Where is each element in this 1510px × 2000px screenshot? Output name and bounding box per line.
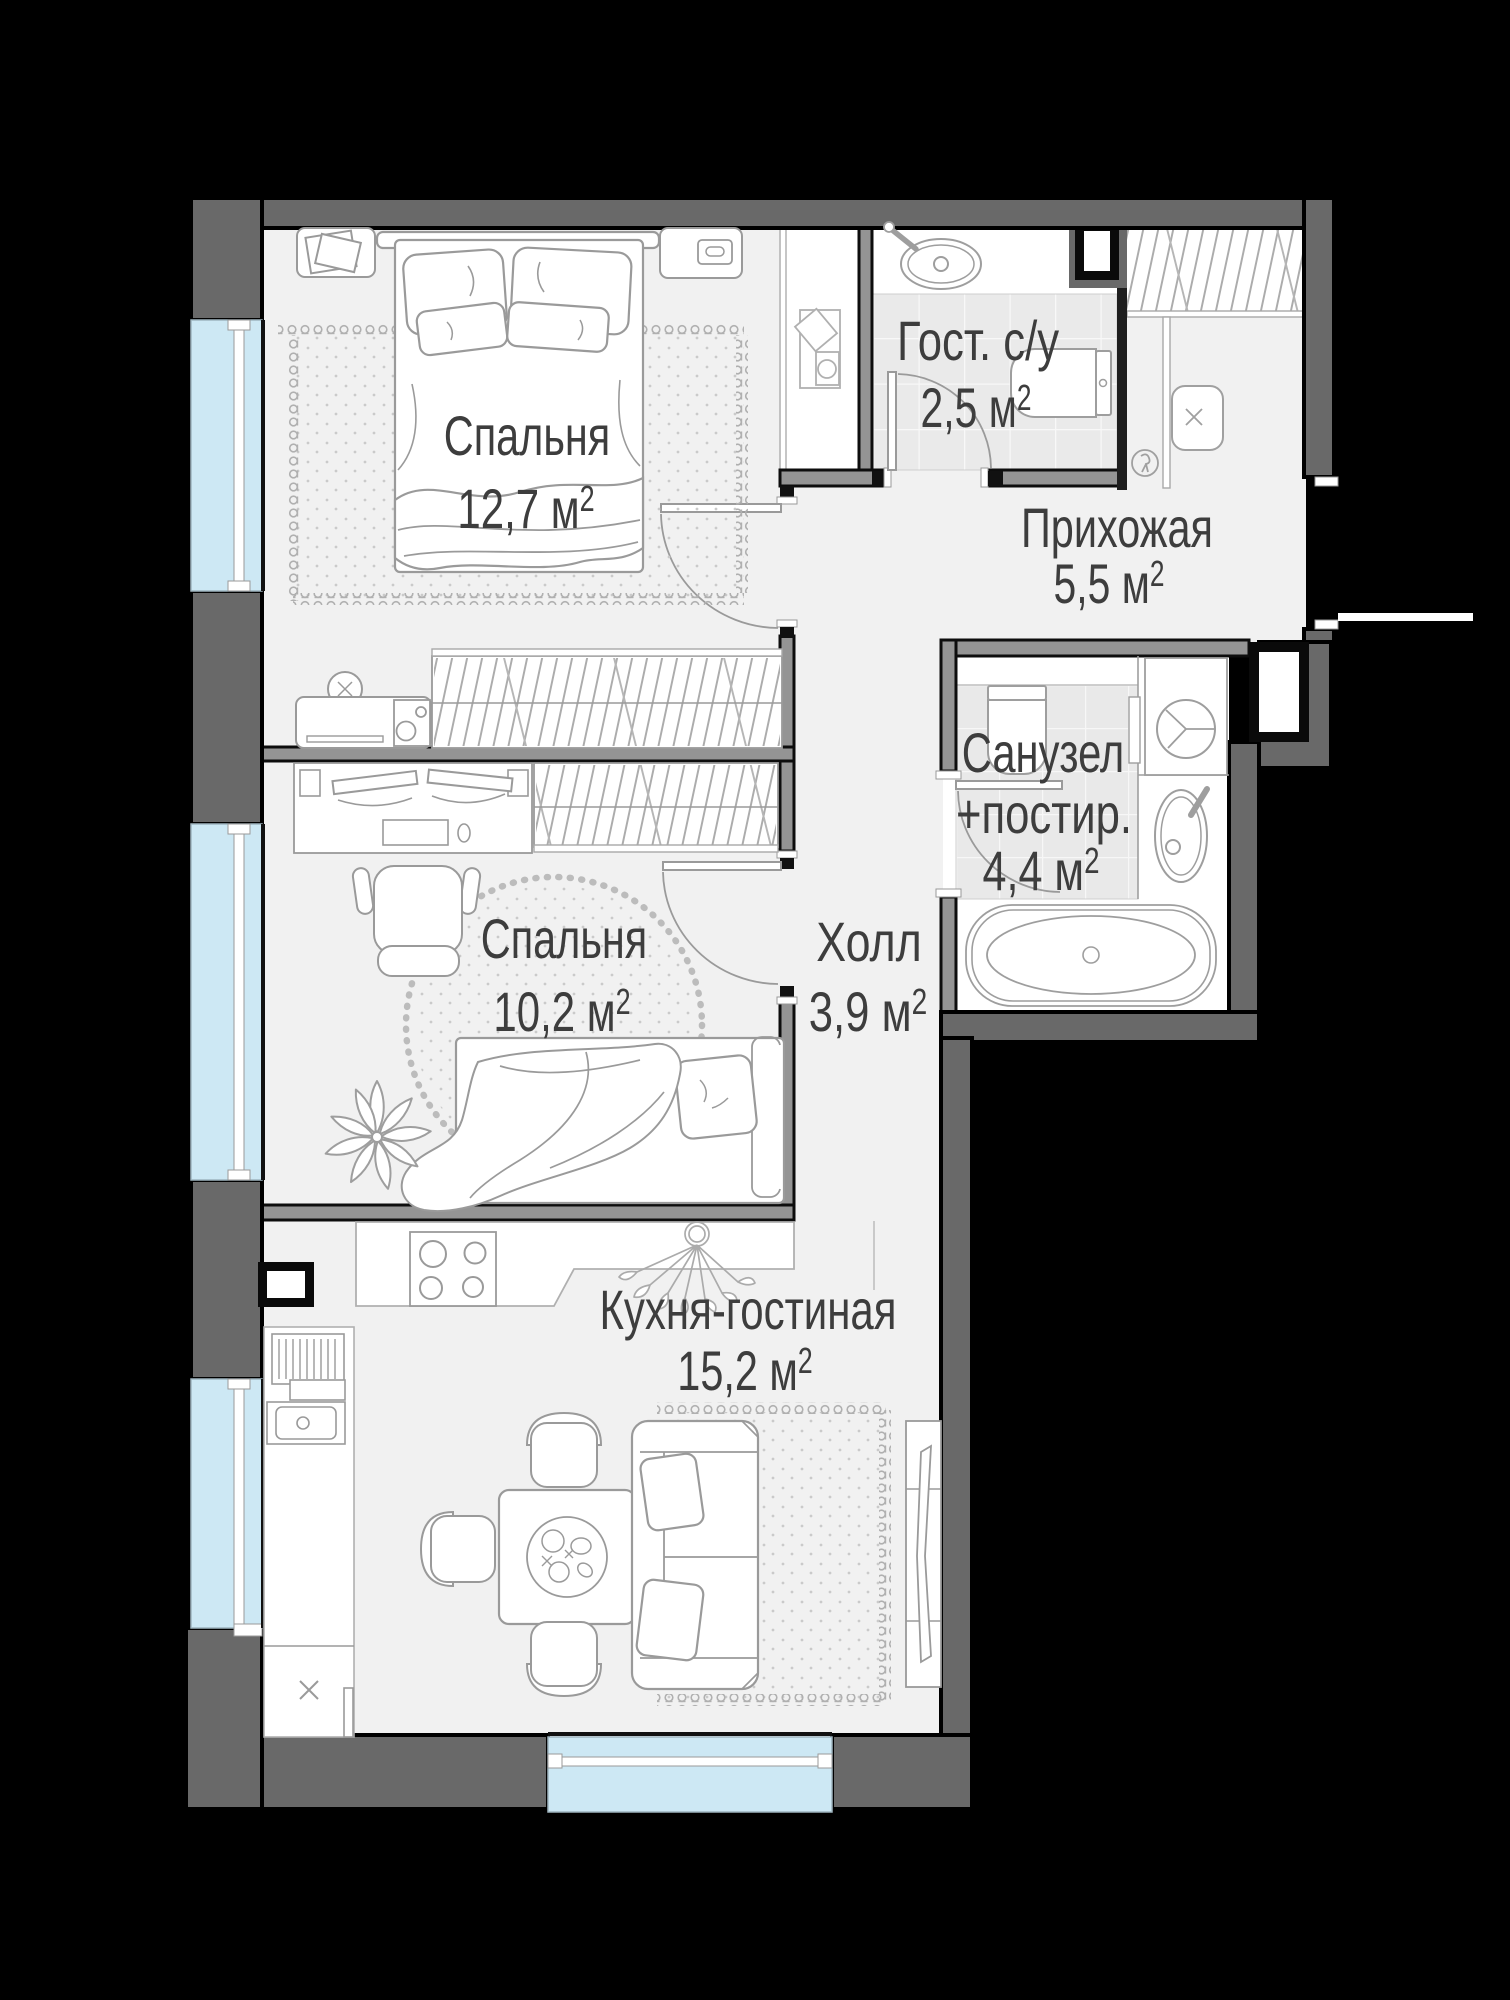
svg-text:Прихожая: Прихожая xyxy=(1021,497,1213,560)
svg-text:15,2 м2: 15,2 м2 xyxy=(677,1340,812,1403)
svg-text:Санузел: Санузел xyxy=(962,722,1124,784)
svg-text:4,4 м2: 4,4 м2 xyxy=(983,840,1100,903)
svg-text:5,5 м2: 5,5 м2 xyxy=(1054,553,1165,616)
svg-text:Кухня-гостиная: Кухня-гостиная xyxy=(599,1279,896,1341)
svg-text:12,7 м2: 12,7 м2 xyxy=(457,478,594,540)
svg-text:Гост. с/у: Гост. с/у xyxy=(897,310,1059,372)
svg-text:2,5 м2: 2,5 м2 xyxy=(921,377,1032,440)
svg-text:10,2 м2: 10,2 м2 xyxy=(493,981,630,1043)
svg-text:Спальня: Спальня xyxy=(444,405,610,468)
svg-text:Спальня: Спальня xyxy=(481,908,647,971)
svg-text:Холл: Холл xyxy=(816,910,922,973)
svg-text:3,9 м2: 3,9 м2 xyxy=(809,981,927,1043)
svg-text:+постир.: +постир. xyxy=(956,783,1132,845)
